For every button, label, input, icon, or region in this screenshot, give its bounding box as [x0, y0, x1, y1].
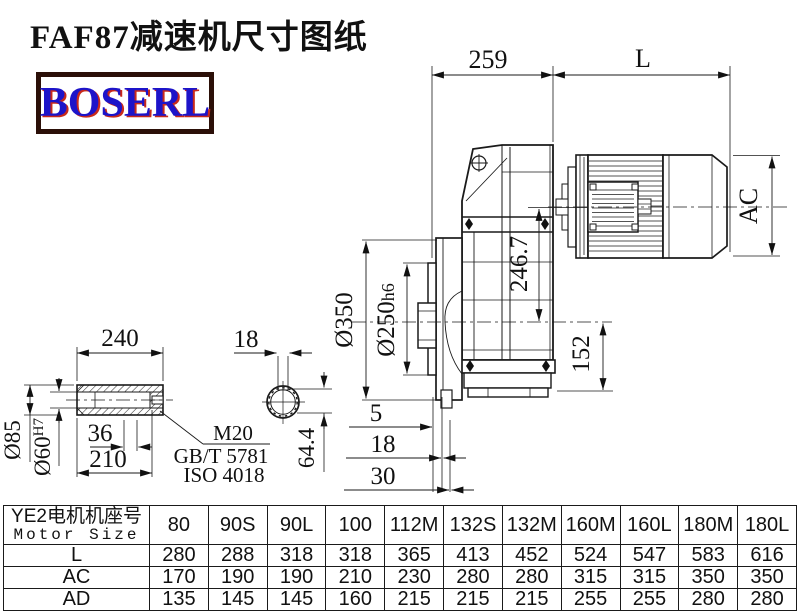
dim-L: L [635, 44, 651, 73]
table-row-AD: AD 135 145 145 160 215 215 215 255 255 2… [4, 589, 797, 611]
cell: 280 [150, 545, 209, 567]
cell: 135 [150, 589, 209, 611]
dim-AC: AC [734, 188, 763, 224]
cell: 413 [444, 545, 503, 567]
cell: 350 [738, 567, 797, 589]
output-flange [436, 238, 462, 400]
cell: 255 [561, 589, 620, 611]
dim-36: 36 [88, 420, 113, 447]
table-header-cn: YE2电机机座号 [4, 507, 149, 527]
cell: 170 [150, 567, 209, 589]
cell: 160 [326, 589, 385, 611]
cell: 190 [267, 567, 326, 589]
col-header: 180L [738, 506, 797, 545]
dim-key-width: 18 [234, 326, 259, 353]
cell: 280 [444, 567, 503, 589]
dim-210: 210 [89, 446, 127, 473]
motor-fan-cowl [663, 155, 727, 258]
table-header-motor-size: YE2电机机座号 Motor Size [4, 506, 150, 545]
col-header: 132M [502, 506, 561, 545]
dim-flange-od: Ø350 [331, 292, 358, 348]
col-header: 80 [150, 506, 209, 545]
cell: 215 [385, 589, 444, 611]
cell: 616 [738, 545, 797, 567]
drawing-sheet: FAF87减速机尺寸图纸 BOSERL [0, 0, 800, 614]
col-header: 180M [679, 506, 738, 545]
dim-152: 152 [568, 335, 595, 373]
col-header: 160M [561, 506, 620, 545]
cell: 315 [620, 567, 679, 589]
cell: 452 [502, 545, 561, 567]
col-header: 112M [385, 506, 444, 545]
cell: 288 [208, 545, 267, 567]
row-label: AC [4, 567, 150, 589]
cell: 230 [385, 567, 444, 589]
table-row-AC: AC 170 190 190 210 230 280 280 315 315 3… [4, 567, 797, 589]
cell: 280 [738, 589, 797, 611]
col-header: 90S [208, 506, 267, 545]
dim-key-height: 64.4 [294, 427, 319, 468]
dim-30: 30 [371, 463, 396, 490]
motor-body [588, 155, 663, 258]
cell: 255 [620, 589, 679, 611]
table-row-L: L 280 288 318 318 365 413 452 524 547 58… [4, 545, 797, 567]
cell: 280 [679, 589, 738, 611]
col-header: 100 [326, 506, 385, 545]
dim-sleeve-od: Ø85 [0, 420, 25, 460]
col-header: 90L [267, 506, 326, 545]
col-header: 160L [620, 506, 679, 545]
callout-thread: M20 [213, 421, 253, 445]
dim-246-7: 246.7 [506, 236, 533, 292]
main-view-dimensions: 259 L AC 246.7 152 Ø350 Ø250h6 5 18 30 [331, 44, 780, 492]
cell: 318 [326, 545, 385, 567]
dim-18: 18 [371, 431, 396, 458]
cell: 215 [502, 589, 561, 611]
cell: 318 [267, 545, 326, 567]
cell: 350 [679, 567, 738, 589]
cell: 145 [267, 589, 326, 611]
cell: 210 [326, 567, 385, 589]
cell: 315 [561, 567, 620, 589]
dim-bore: Ø60H7 [30, 418, 55, 476]
cell: 547 [620, 545, 679, 567]
dim-spigot: Ø250h6 [373, 283, 400, 357]
motor-size-table: YE2电机机座号 Motor Size 80 90S 90L 100 112M … [3, 505, 797, 611]
cell: 215 [444, 589, 503, 611]
cell: 145 [208, 589, 267, 611]
cell: 280 [502, 567, 561, 589]
row-label: AD [4, 589, 150, 611]
table-header-en: Motor Size [4, 527, 149, 544]
dim-240: 240 [101, 325, 139, 352]
cell: 583 [679, 545, 738, 567]
col-header: 132S [444, 506, 503, 545]
callout-std-iso: ISO 4018 [183, 463, 264, 487]
cell: 190 [208, 567, 267, 589]
hollow-shaft-detail: 240 Ø85 Ø60H7 36 210 M20 GB/T 5781 ISO 4… [0, 325, 270, 487]
dim-259: 259 [469, 45, 508, 74]
row-label: L [4, 545, 150, 567]
cell: 524 [561, 545, 620, 567]
dim-5: 5 [370, 400, 383, 427]
cell: 365 [385, 545, 444, 567]
